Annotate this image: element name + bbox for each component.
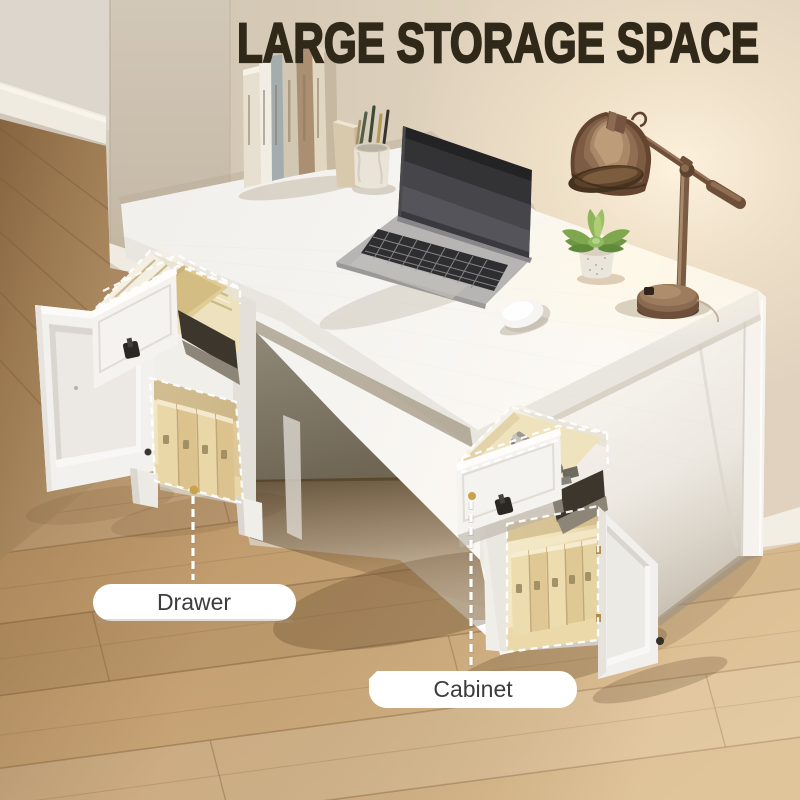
svg-text:Cabinet: Cabinet (433, 676, 513, 702)
svg-text:LARGE STORAGE SPACE: LARGE STORAGE SPACE (237, 11, 759, 74)
svg-text:Drawer: Drawer (157, 589, 231, 615)
